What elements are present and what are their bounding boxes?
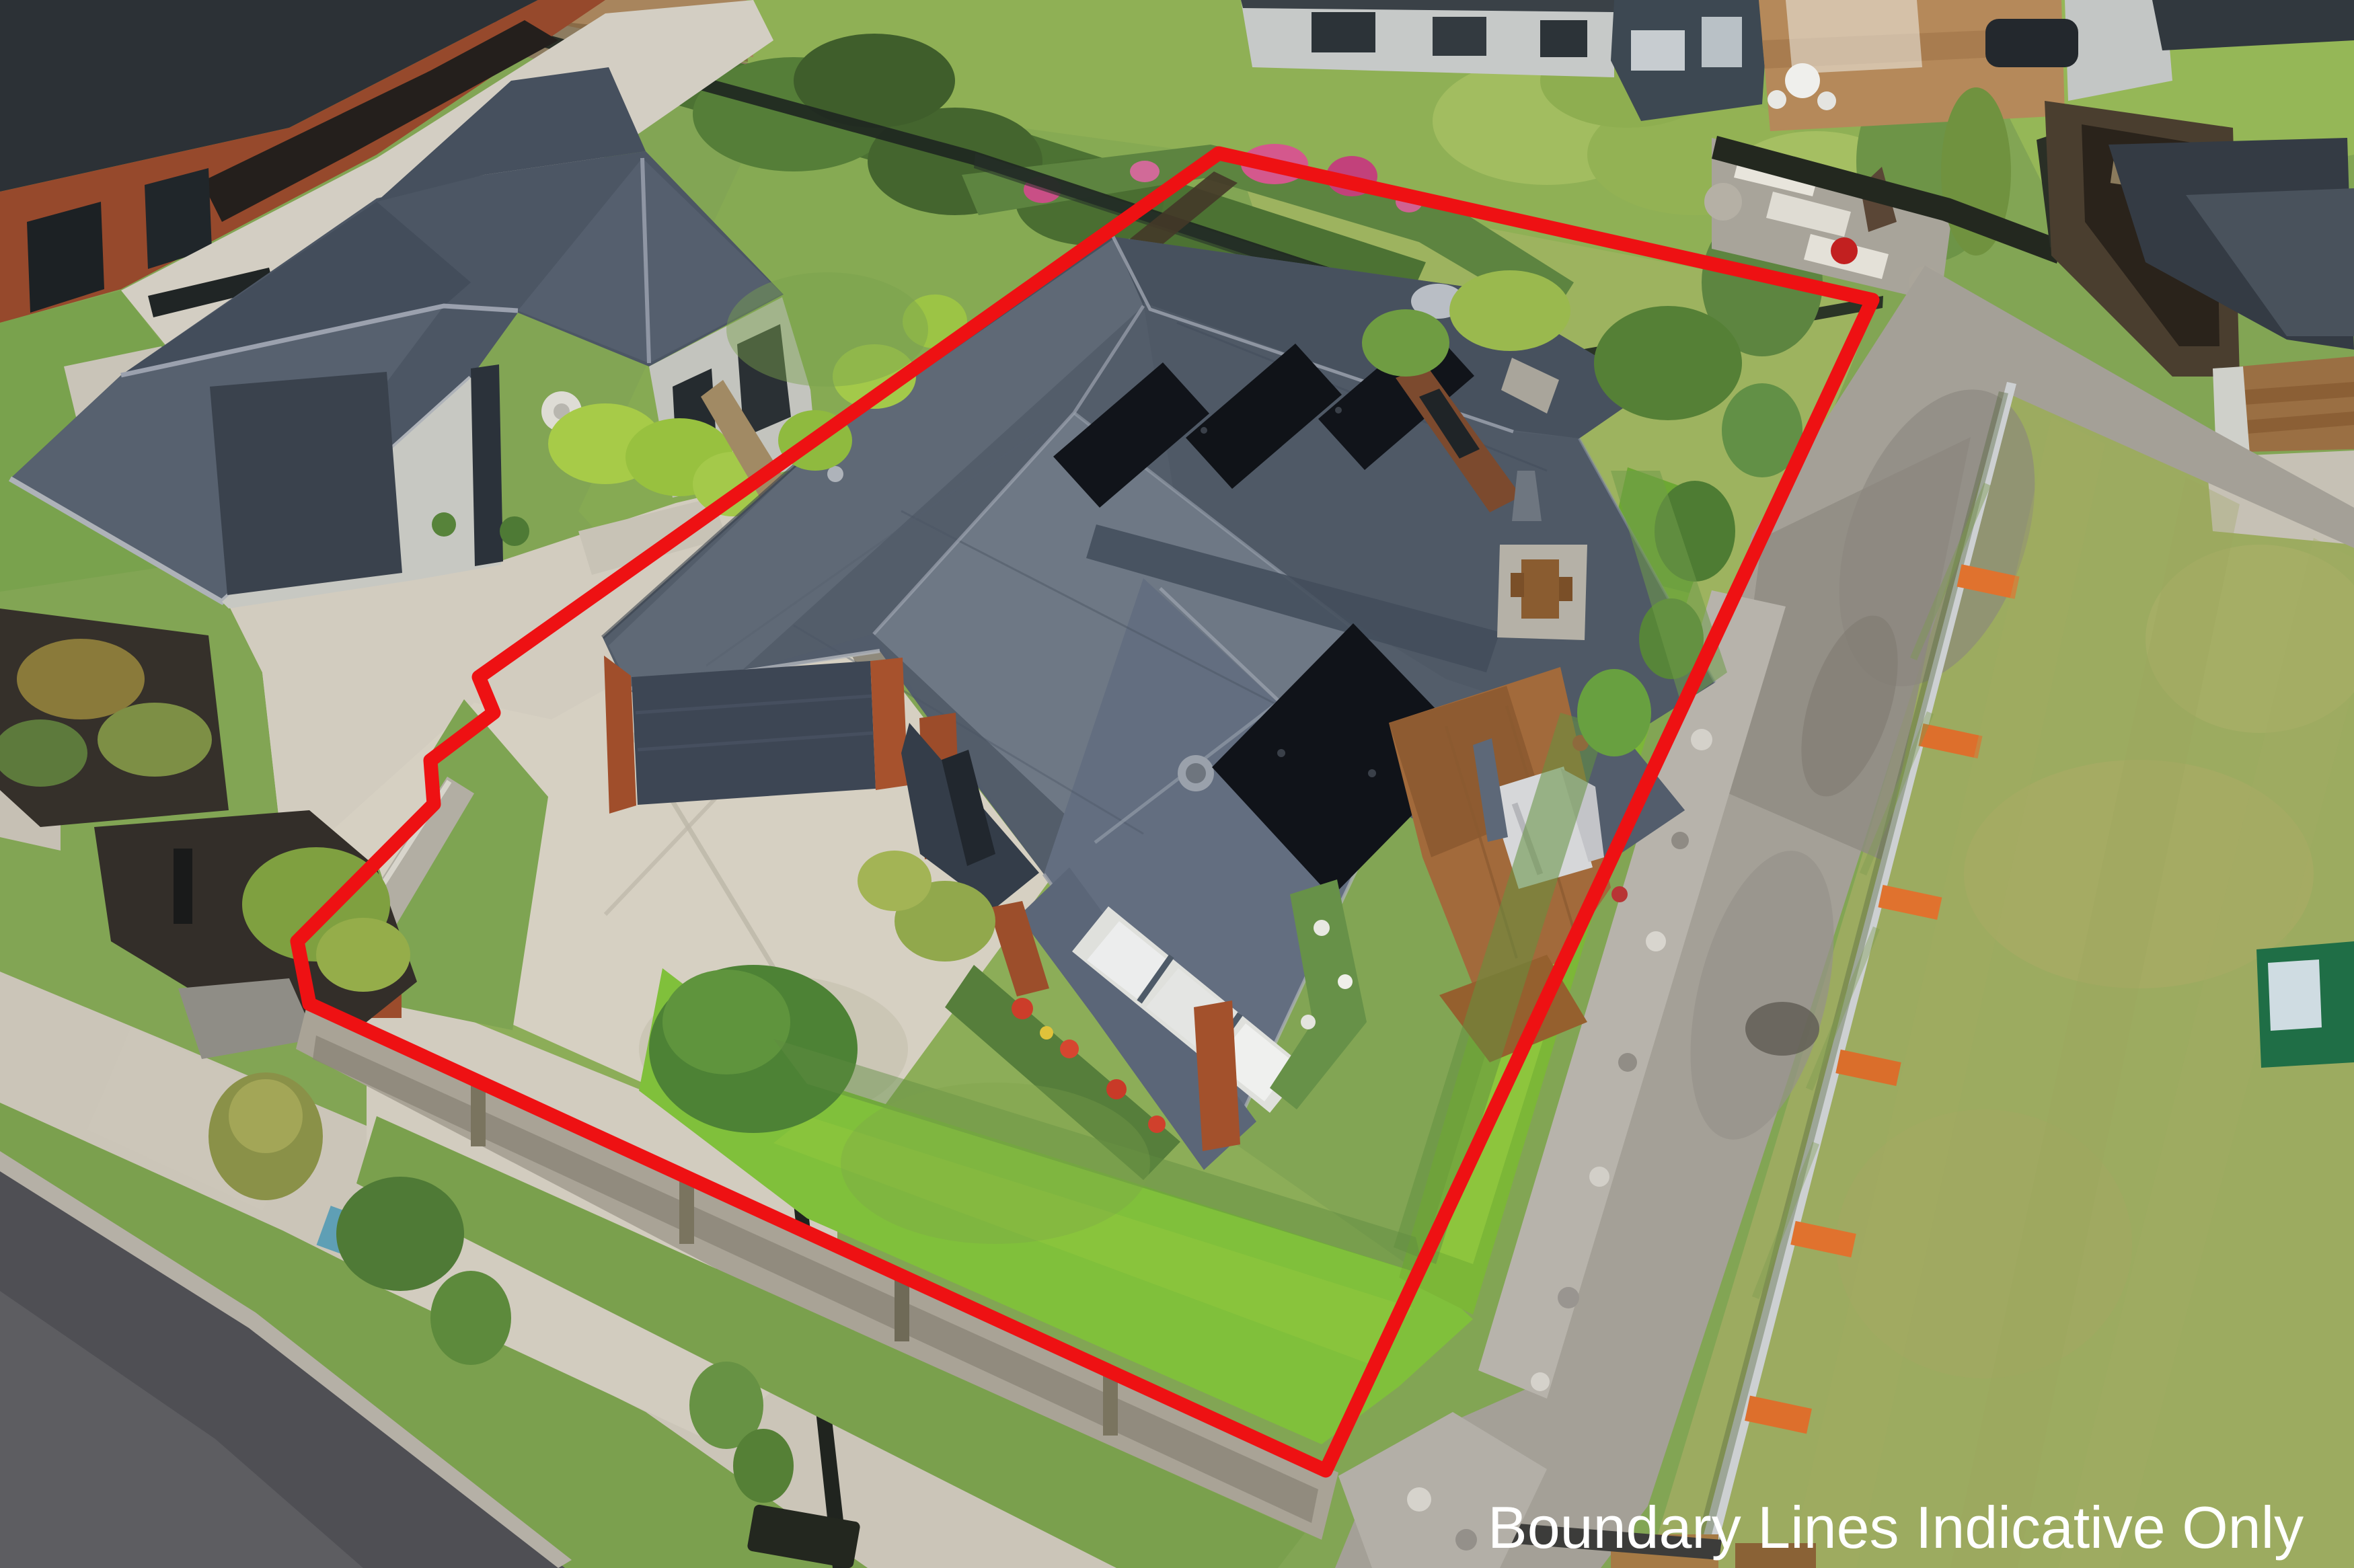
- svg-text:Boundary Lines Indicative Only: Boundary Lines Indicative Only: [1488, 1494, 2304, 1561]
